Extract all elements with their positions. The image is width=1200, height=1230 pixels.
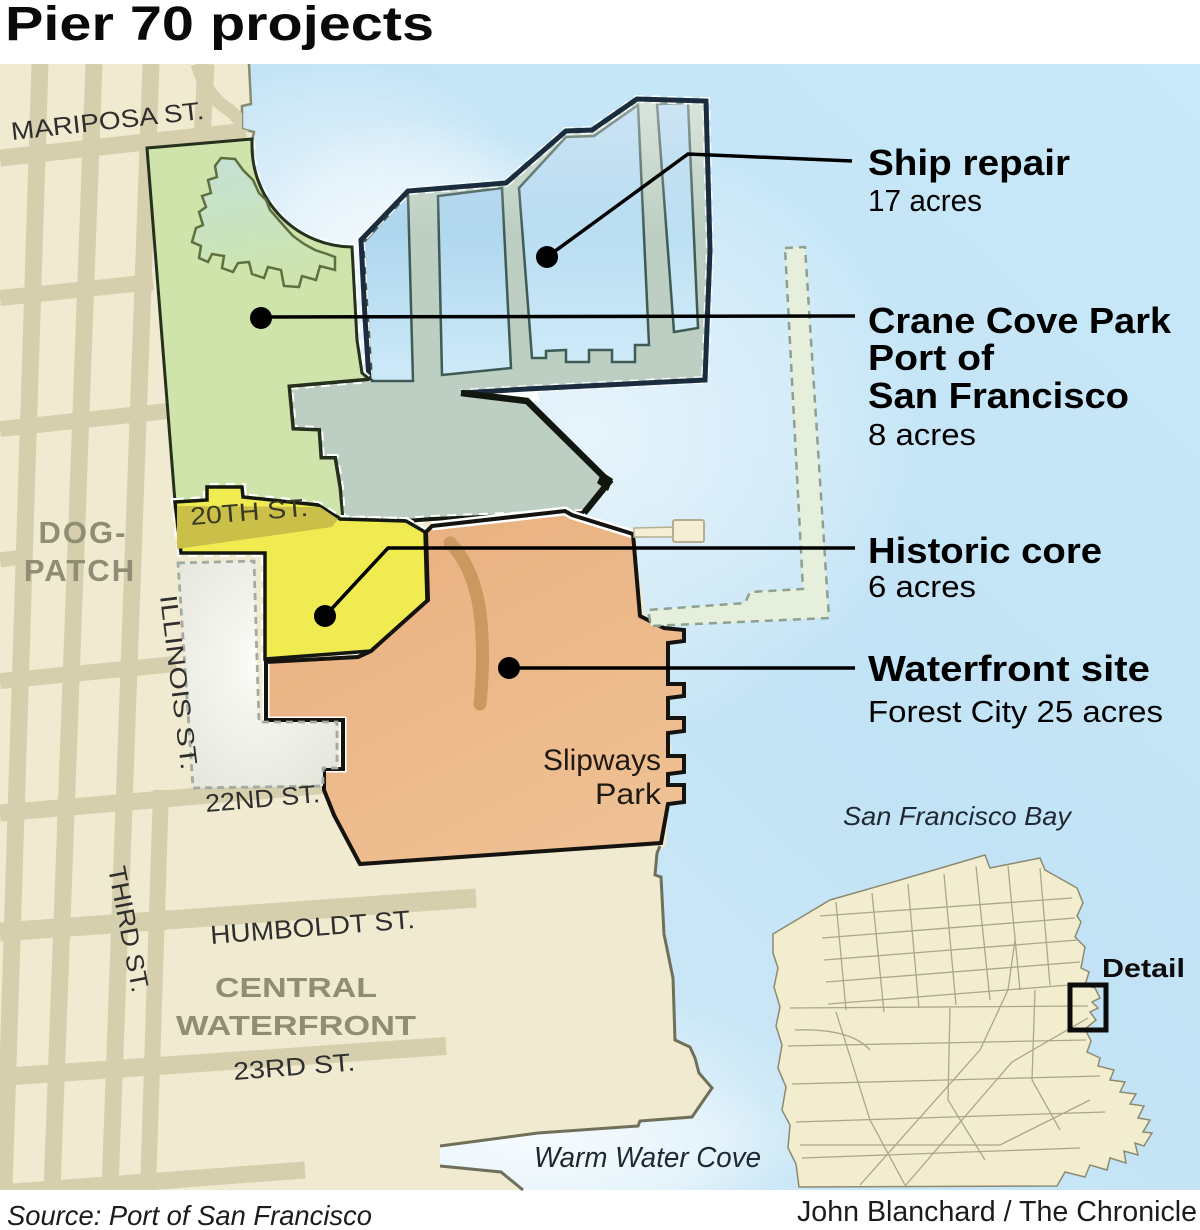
svg-text:Waterfront site: Waterfront site (868, 648, 1150, 689)
svg-text:Crane Cove Park: Crane Cove Park (868, 300, 1172, 341)
svg-text:Port of: Port of (868, 337, 995, 378)
svg-text:Detail: Detail (1102, 953, 1185, 983)
svg-text:Park: Park (595, 778, 662, 811)
svg-text:Historic core: Historic core (868, 530, 1102, 571)
svg-text:Slipways: Slipways (543, 744, 661, 777)
svg-text:Warm Water Cove: Warm Water Cove (534, 1142, 761, 1174)
svg-text:John Blanchard / The Chronicle: John Blanchard / The Chronicle (797, 1196, 1197, 1228)
svg-text:San Francisco Bay: San Francisco Bay (843, 801, 1073, 831)
svg-text:6 acres: 6 acres (868, 569, 976, 604)
svg-text:WATERFRONT: WATERFRONT (176, 1010, 416, 1041)
svg-text:PATCH: PATCH (24, 553, 136, 588)
svg-text:Pier 70 projects: Pier 70 projects (5, 0, 434, 51)
svg-text:Source: Port of San Francisco: Source: Port of San Francisco (7, 1200, 372, 1230)
svg-text:DOG-: DOG- (39, 515, 128, 550)
svg-text:CENTRAL: CENTRAL (215, 972, 377, 1003)
svg-text:San Francisco: San Francisco (868, 375, 1129, 416)
svg-text:17 acres: 17 acres (868, 183, 982, 218)
svg-text:Forest City 25 acres: Forest City 25 acres (868, 694, 1163, 729)
svg-text:Ship repair: Ship repair (868, 142, 1070, 183)
svg-text:8 acres: 8 acres (868, 417, 976, 452)
